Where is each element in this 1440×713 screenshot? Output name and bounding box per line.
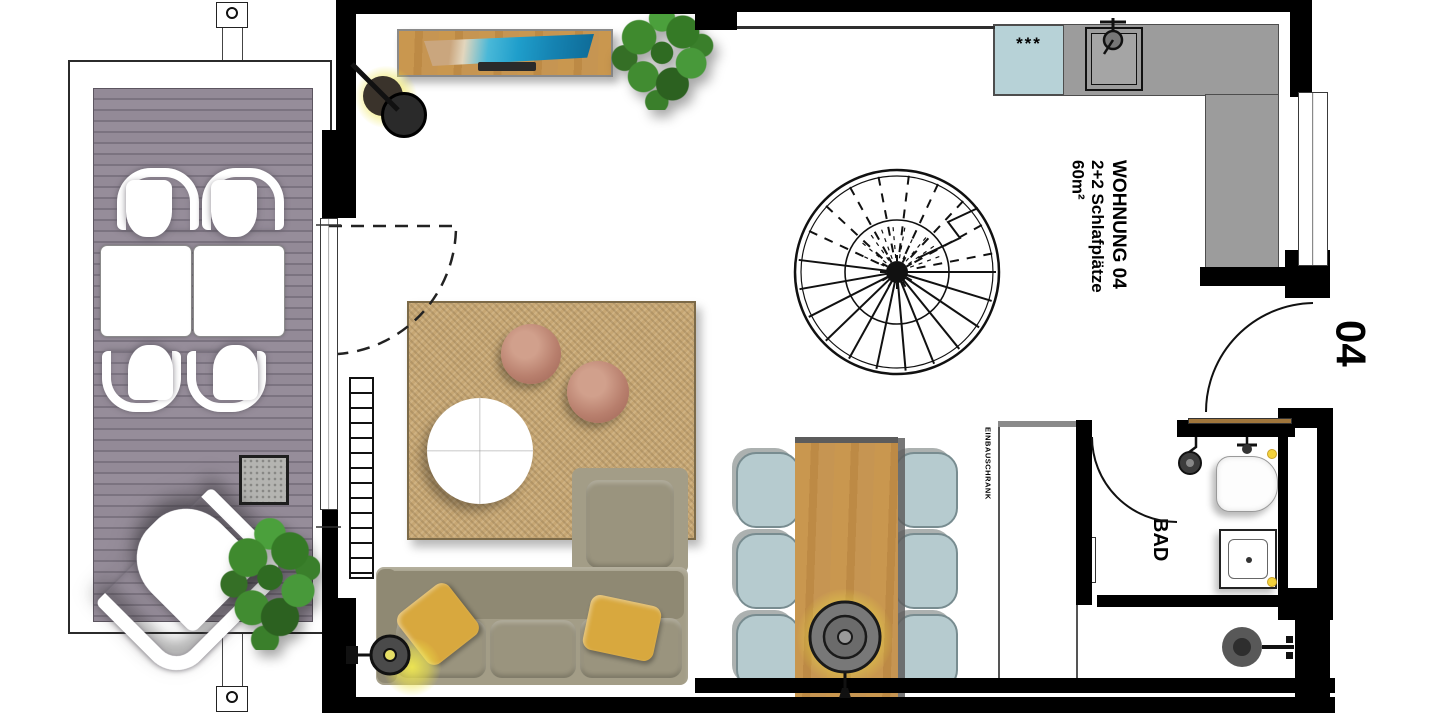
shower-head-icon xyxy=(1237,437,1257,454)
floor-lamp-arm xyxy=(352,64,398,110)
floor-plan-canvas: *** WOHNUNG 04 2 xyxy=(0,0,1440,713)
pendant-light-icon xyxy=(810,602,880,698)
plan-overlay xyxy=(0,0,1440,713)
door-swing-terrace xyxy=(329,226,456,354)
wall-light-icon xyxy=(1222,627,1294,667)
door-swing-entry xyxy=(1206,303,1313,412)
spiral-staircase-icon xyxy=(795,170,999,374)
wall-light-icon xyxy=(346,636,409,674)
shower-head-icon xyxy=(1179,437,1201,474)
faucet-icon xyxy=(1100,18,1126,54)
door-swing-bathroom xyxy=(1092,437,1177,522)
